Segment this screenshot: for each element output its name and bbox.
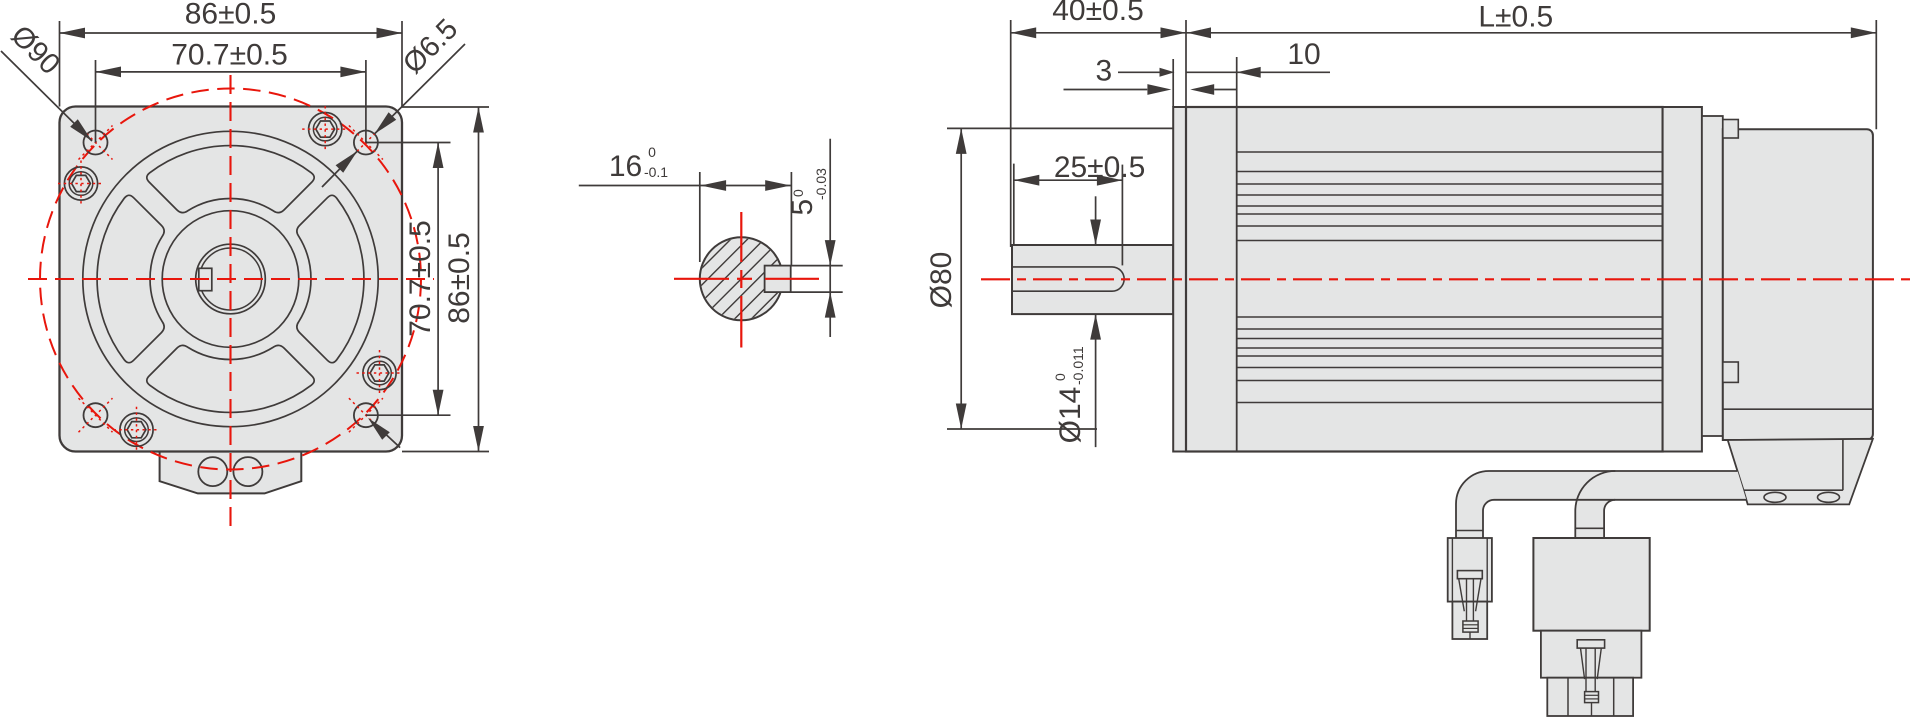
svg-text:70.7±0.5: 70.7±0.5 bbox=[404, 220, 437, 337]
svg-text:86±0.5: 86±0.5 bbox=[185, 0, 277, 31]
svg-text:L±0.5: L±0.5 bbox=[1478, 1, 1553, 34]
svg-text:5: 5 bbox=[786, 199, 819, 216]
svg-text:0: 0 bbox=[1052, 373, 1068, 381]
svg-text:Ø14: Ø14 bbox=[1054, 387, 1087, 444]
svg-text:0: 0 bbox=[648, 144, 656, 160]
svg-text:Ø80: Ø80 bbox=[925, 252, 958, 309]
svg-text:86±0.5: 86±0.5 bbox=[443, 232, 476, 324]
svg-text:25±0.5: 25±0.5 bbox=[1054, 151, 1146, 184]
svg-text:-0.03: -0.03 bbox=[813, 168, 829, 200]
svg-text:16: 16 bbox=[609, 150, 642, 183]
svg-text:70.7±0.5: 70.7±0.5 bbox=[171, 39, 288, 72]
svg-text:-0.011: -0.011 bbox=[1070, 346, 1086, 385]
svg-text:10: 10 bbox=[1287, 38, 1320, 71]
svg-text:3: 3 bbox=[1095, 55, 1112, 88]
svg-text:40±0.5: 40±0.5 bbox=[1052, 0, 1144, 27]
svg-text:0: 0 bbox=[790, 189, 806, 197]
svg-text:-0.1: -0.1 bbox=[644, 164, 668, 180]
